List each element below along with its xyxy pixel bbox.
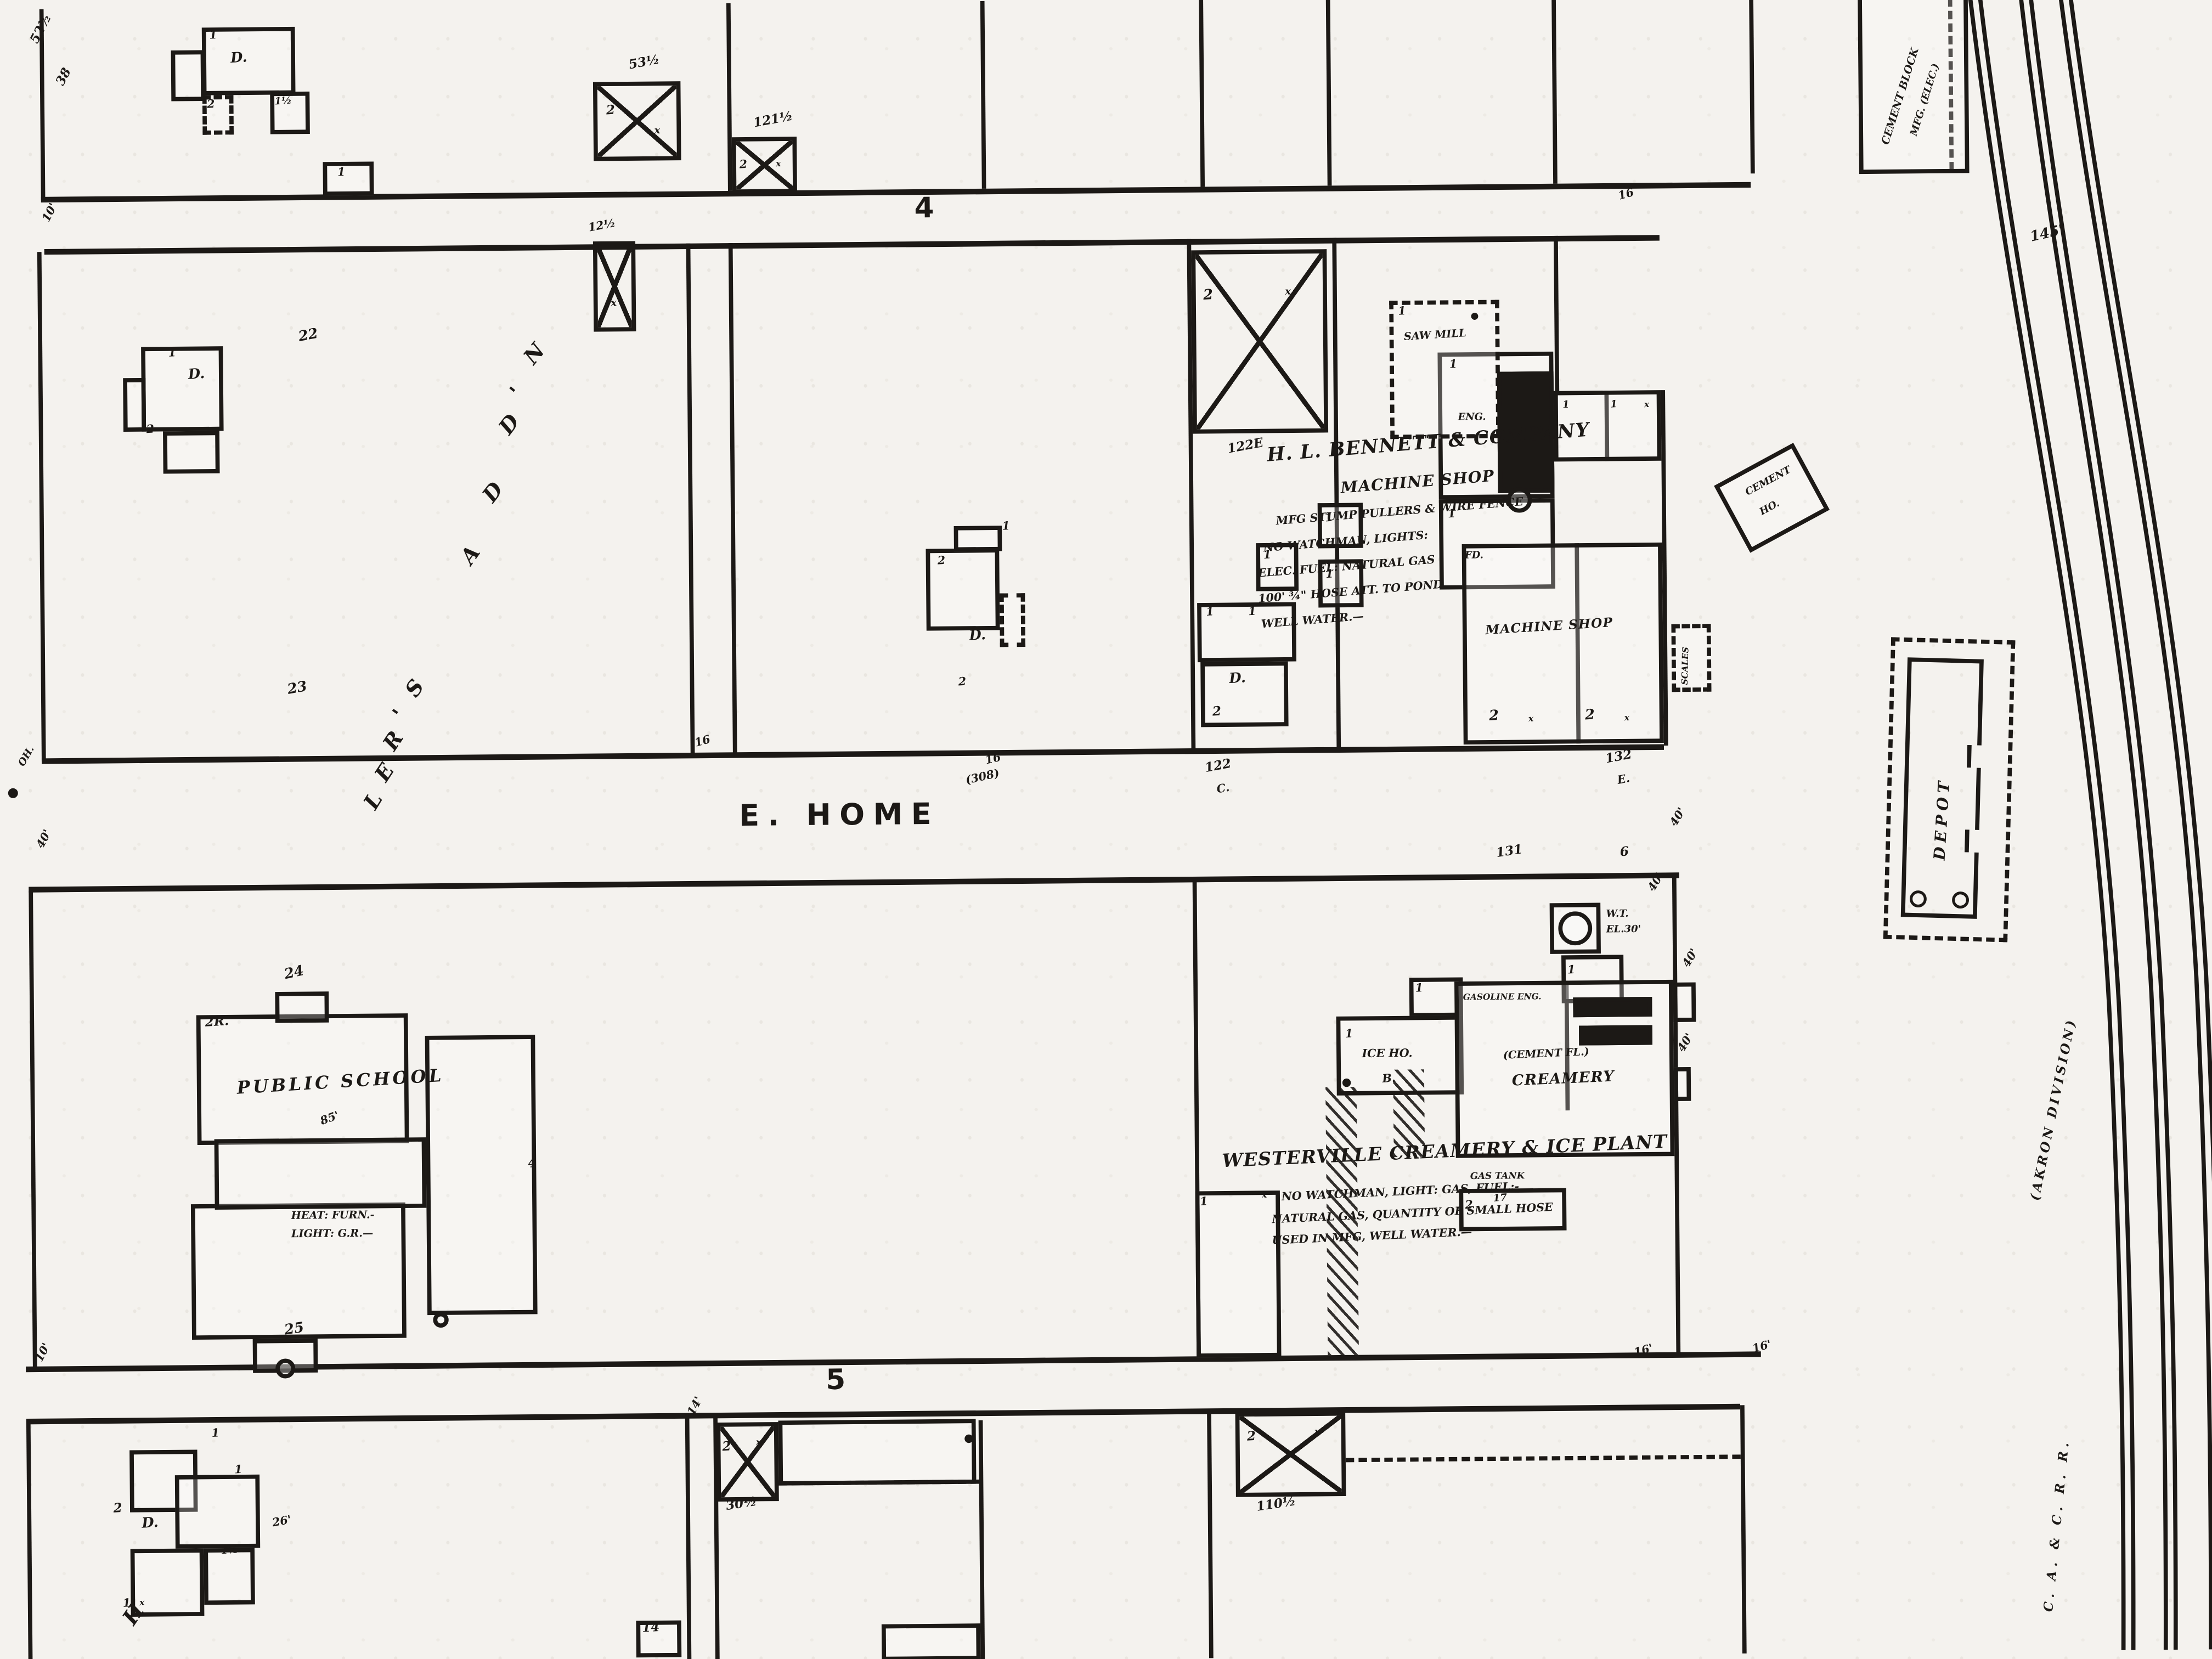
map-label: x [611, 297, 617, 308]
map-label: 16 [1617, 186, 1635, 201]
circle-marker [1558, 911, 1592, 945]
map-label: 1 [1248, 605, 1257, 617]
map-label: 16 [693, 733, 712, 748]
x-marked-outbuilding [716, 1422, 778, 1502]
map-label: E. [1616, 772, 1630, 785]
depot-label: DEPOT [1932, 777, 1952, 861]
solid-filled-structure [1573, 997, 1652, 1017]
x-marked-outbuilding [593, 81, 681, 161]
solid-filled-structure [1579, 1025, 1652, 1045]
marker-dot [1342, 1079, 1351, 1087]
map-label: B. [1382, 1072, 1396, 1084]
map-label: x [1624, 715, 1629, 724]
depot-corner-marker [1910, 890, 1927, 908]
building-footprint [123, 378, 146, 432]
building-footprint [141, 346, 223, 432]
block-number-5: 5 [826, 1365, 845, 1393]
map-label: x [1528, 715, 1534, 724]
map-label: x [654, 125, 661, 136]
school-light-note: LIGHT: G.R.— [291, 1228, 373, 1240]
map-label: 2 [1212, 707, 1221, 720]
map-label: x [1644, 401, 1650, 410]
building-footprint [1858, 0, 1969, 174]
map-label: 1½ [221, 1544, 238, 1555]
depot-notch [1965, 830, 1983, 853]
map-label: 25 [284, 1322, 305, 1339]
building-footprint [323, 161, 374, 196]
water-tank-label-2: EL.30' [1606, 923, 1641, 934]
map-label: 26' [271, 1513, 292, 1528]
marker-dot [1471, 313, 1478, 320]
map-label: D. [969, 629, 986, 645]
map-label: 2 [722, 1442, 731, 1455]
map-label: 16 [984, 751, 1002, 765]
ice-house-label: ICE HO. [1362, 1047, 1412, 1058]
map-label: D. [188, 368, 205, 383]
map-label: 1 [1567, 963, 1576, 975]
building-footprint [275, 991, 329, 1023]
depot-footprint: DEPOT [1901, 657, 1984, 919]
map-label: x [1261, 1192, 1267, 1200]
circle-marker [275, 1358, 295, 1378]
map-label: 1 [234, 1463, 243, 1475]
map-label: 2 [937, 554, 946, 566]
scales-label: SCALES [1681, 647, 1691, 685]
page: { "paper_color":"#f4f2ee", "ink_color":"… [0, 0, 2212, 1659]
building-footprint [882, 1623, 981, 1659]
water-tank-label-1: W.T. [1606, 908, 1629, 918]
map-label: 2 [606, 105, 615, 119]
engine-room-label: ENG. [1458, 411, 1486, 421]
x-marked-outbuilding [593, 241, 636, 331]
map-label: x [1314, 1429, 1320, 1437]
building-footprint [163, 431, 220, 473]
map-label: 2R. [205, 1017, 229, 1031]
depot-building: DEPOT [1883, 637, 2016, 942]
map-label: D. [1229, 672, 1246, 687]
map-label: 2 [1246, 1431, 1256, 1444]
map-label: 1 [168, 346, 177, 358]
building-footprint [191, 1203, 407, 1340]
building-footprint [1673, 983, 1696, 1022]
building-footprint [215, 1137, 427, 1210]
map-label: 2 [1584, 709, 1595, 724]
feed-room-label: FD. [1465, 550, 1483, 560]
map-label: 2 [113, 1504, 122, 1517]
map-label: 1 [1415, 981, 1424, 993]
building-footprint [926, 548, 1000, 630]
map-label: 2 [739, 158, 748, 170]
map-stage: 52½38D.121½153½2x121½2x10'1612½x2223D.12… [0, 0, 2212, 1659]
block-number-4: 4 [914, 193, 934, 222]
map-label: 4 [528, 1159, 537, 1172]
gasoline-engine-label: GASOLINE ENG. [1463, 994, 1542, 1003]
x-marked-outbuilding [1235, 1412, 1346, 1497]
building-footprint [1195, 1190, 1282, 1358]
sanborn-map-canvas: 52½38D.121½153½2x121½2x10'1612½x2223D.12… [0, 0, 2212, 1659]
map-label: x [1285, 286, 1291, 296]
map-label: 1½ [274, 95, 292, 106]
building-footprint [1674, 1067, 1691, 1101]
map-content: 52½38D.121½153½2x121½2x10'1612½x2223D.12… [0, 0, 2212, 1659]
circle-marker [433, 1312, 449, 1328]
map-label: 2 [958, 675, 967, 687]
map-label: 1 [1345, 1027, 1353, 1039]
map-label: 14 [642, 1622, 661, 1636]
depot-corner-marker [1952, 891, 1970, 909]
street-label-e-home: E. HOME [739, 800, 940, 831]
map-label: D. [142, 1517, 159, 1532]
depot-notch [1967, 745, 1985, 768]
building-footprint [175, 1475, 260, 1549]
building-footprint [171, 50, 206, 101]
map-label: 1 [1199, 1195, 1208, 1206]
map-label: C. [1216, 781, 1231, 794]
marker-dot [8, 788, 18, 798]
building-footprint [204, 1548, 255, 1605]
map-label: 2 [207, 98, 216, 109]
school-heat-note: HEAT: FURN.- [291, 1210, 375, 1221]
map-label: 1 [1562, 399, 1570, 409]
dashed-building-outline [1000, 593, 1025, 647]
x-marked-outbuilding [1191, 249, 1328, 433]
building-footprint [778, 1419, 977, 1485]
map-label: 1 [209, 29, 218, 40]
map-label: 6 [1620, 847, 1629, 860]
map-label: 2 [146, 422, 155, 434]
map-label: x [776, 161, 781, 170]
marker-dot [964, 1435, 973, 1443]
map-label: 1 [211, 1426, 220, 1438]
map-label: 2 [1203, 289, 1214, 304]
map-label: x [756, 1439, 761, 1448]
map-label: 1 [337, 166, 346, 177]
map-label: 1 [1610, 399, 1618, 409]
dashed-building-outline [1671, 624, 1711, 692]
map-label: 1 [1398, 304, 1407, 316]
map-label: 1 [1206, 605, 1215, 617]
gas-tank-label: GAS TANK [1470, 1171, 1525, 1181]
map-label: 2 [1489, 710, 1499, 725]
map-label: 1 [1449, 358, 1458, 369]
map-label: 1 [1002, 520, 1011, 531]
map-label: D. [230, 52, 248, 67]
building-footprint [954, 526, 1002, 551]
